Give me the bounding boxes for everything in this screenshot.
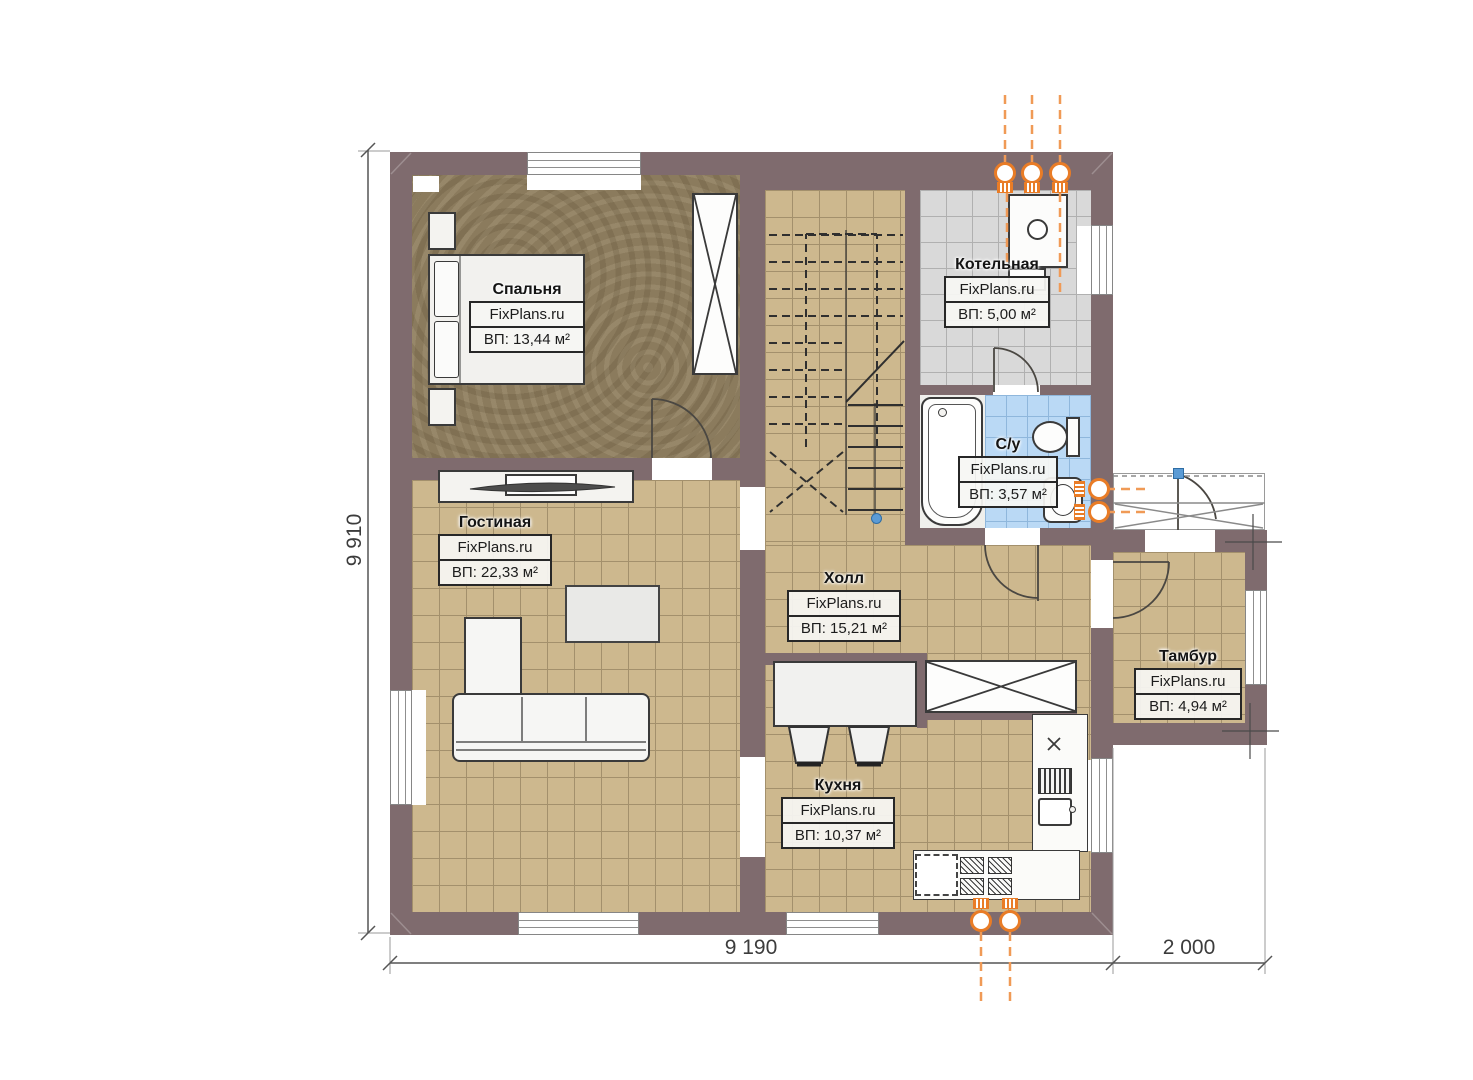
floor-stair-corridor: [765, 190, 905, 545]
door-opening-bathroom: [985, 528, 1040, 545]
stove-burner-2: [988, 857, 1012, 874]
bathtub-drain: [938, 408, 947, 417]
bedroom-corner-niche: [413, 176, 439, 192]
hall-closet: [925, 660, 1077, 713]
room-area: ВП: 22,33 м²: [440, 561, 550, 584]
riser-marker-icon: [1088, 478, 1110, 500]
riser-marker-icon: [994, 162, 1016, 184]
stove-burner-1: [960, 857, 984, 874]
window-vestibule-right: [1245, 590, 1267, 685]
label-kitchen: Кухня FixPlans.ru ВП: 10,37 м²: [781, 777, 895, 849]
tv: [505, 474, 577, 496]
label-bedroom: Спальня FixPlans.ru ВП: 13,44 м²: [469, 281, 585, 353]
watermark: FixPlans.ru: [440, 536, 550, 561]
stove-burner-4: [988, 878, 1012, 895]
window-living-bottom: [518, 912, 639, 935]
label-vestibule: Тамбур FixPlans.ru ВП: 4,94 м²: [1134, 648, 1242, 720]
label-living-room: Гостиная FixPlans.ru ВП: 22,33 м²: [438, 514, 552, 586]
kitchen-sink-faucet: [1069, 806, 1076, 813]
room-area: ВП: 4,94 м²: [1136, 695, 1240, 718]
door-opening-boiler: [993, 385, 1040, 395]
label-bathroom: С/у FixPlans.ru ВП: 3,57 м²: [958, 436, 1058, 508]
nightstand-top: [428, 212, 456, 250]
stove-burner-3: [960, 878, 984, 895]
riser-vent-icon: [1052, 182, 1068, 193]
riser-marker-icon: [1088, 501, 1110, 523]
riser-marker-icon: [999, 910, 1021, 932]
nightstand-bottom: [428, 388, 456, 426]
window-living-left: [390, 690, 412, 805]
room-name: С/у: [958, 436, 1058, 454]
watermark: FixPlans.ru: [960, 458, 1056, 483]
watermark: FixPlans.ru: [471, 303, 583, 328]
room-area: ВП: 15,21 м²: [789, 617, 899, 640]
window-kitchen-right: [1091, 758, 1113, 853]
riser-vent-icon: [997, 182, 1013, 193]
riser-vent-icon: [1074, 504, 1085, 520]
toilet-tank: [1066, 417, 1080, 457]
room-area: ВП: 13,44 м²: [471, 328, 583, 351]
door-opening-entrance: [1145, 530, 1215, 552]
wardrobe-bedroom: [692, 193, 738, 375]
entry-porch: [1113, 473, 1265, 530]
dimension-left-height: 9 910: [343, 490, 367, 590]
room-name: Кухня: [781, 777, 895, 795]
opening-living-hall-lower: [740, 757, 765, 857]
watermark: FixPlans.ru: [789, 592, 899, 617]
riser-vent-icon: [973, 898, 989, 909]
room-name: Спальня: [469, 281, 585, 299]
door-opening-bedroom: [652, 458, 712, 480]
sill-living-window: [412, 690, 426, 805]
door-opening-vestibule: [1091, 560, 1113, 628]
window-bedroom-top: [527, 152, 641, 175]
sill-boiler-window: [1077, 226, 1091, 294]
watermark: FixPlans.ru: [1136, 670, 1240, 695]
room-name: Котельная: [944, 256, 1050, 274]
kitchen-appliance: [1038, 768, 1072, 794]
window-hall-bottom: [786, 912, 879, 935]
riser-vent-icon: [1074, 481, 1085, 497]
boiler-circle: [1027, 219, 1048, 240]
room-name: Тамбур: [1134, 648, 1242, 666]
riser-vent-icon: [1002, 898, 1018, 909]
window-boiler-right: [1091, 225, 1113, 295]
kitchen-sink: [1038, 798, 1072, 826]
sill-bedroom-window: [527, 175, 641, 190]
room-area: ВП: 5,00 м²: [946, 303, 1048, 326]
floor-plan-canvas: Спальня FixPlans.ru ВП: 13,44 м² Котельн…: [0, 0, 1473, 1080]
riser-marker-icon: [1021, 162, 1043, 184]
riser-marker-icon: [970, 910, 992, 932]
coffee-table: [565, 585, 660, 643]
room-name: Гостиная: [438, 514, 552, 532]
label-hall: Холл FixPlans.ru ВП: 15,21 м²: [787, 570, 901, 642]
dishwasher: [915, 854, 958, 896]
watermark: FixPlans.ru: [783, 799, 893, 824]
bed-pillow-1: [434, 261, 459, 317]
sofa-main: [452, 693, 650, 762]
label-boiler-room: Котельная FixPlans.ru ВП: 5,00 м²: [944, 256, 1050, 328]
stair-node-dot: [871, 513, 882, 524]
riser-vent-icon: [1024, 182, 1040, 193]
opening-living-hall-upper: [740, 487, 765, 550]
bed-pillow-2: [434, 321, 459, 378]
door-handle-dot: [1173, 468, 1184, 479]
watermark: FixPlans.ru: [946, 278, 1048, 303]
hall-table: [773, 661, 917, 727]
riser-marker-icon: [1049, 162, 1071, 184]
dimension-bottom-porch: 2 000: [1129, 936, 1249, 960]
room-area: ВП: 3,57 м²: [960, 483, 1056, 506]
dimension-bottom-main: 9 190: [691, 936, 811, 960]
room-name: Холл: [787, 570, 901, 588]
sofa-chaise: [464, 617, 522, 699]
room-area: ВП: 10,37 м²: [783, 824, 893, 847]
